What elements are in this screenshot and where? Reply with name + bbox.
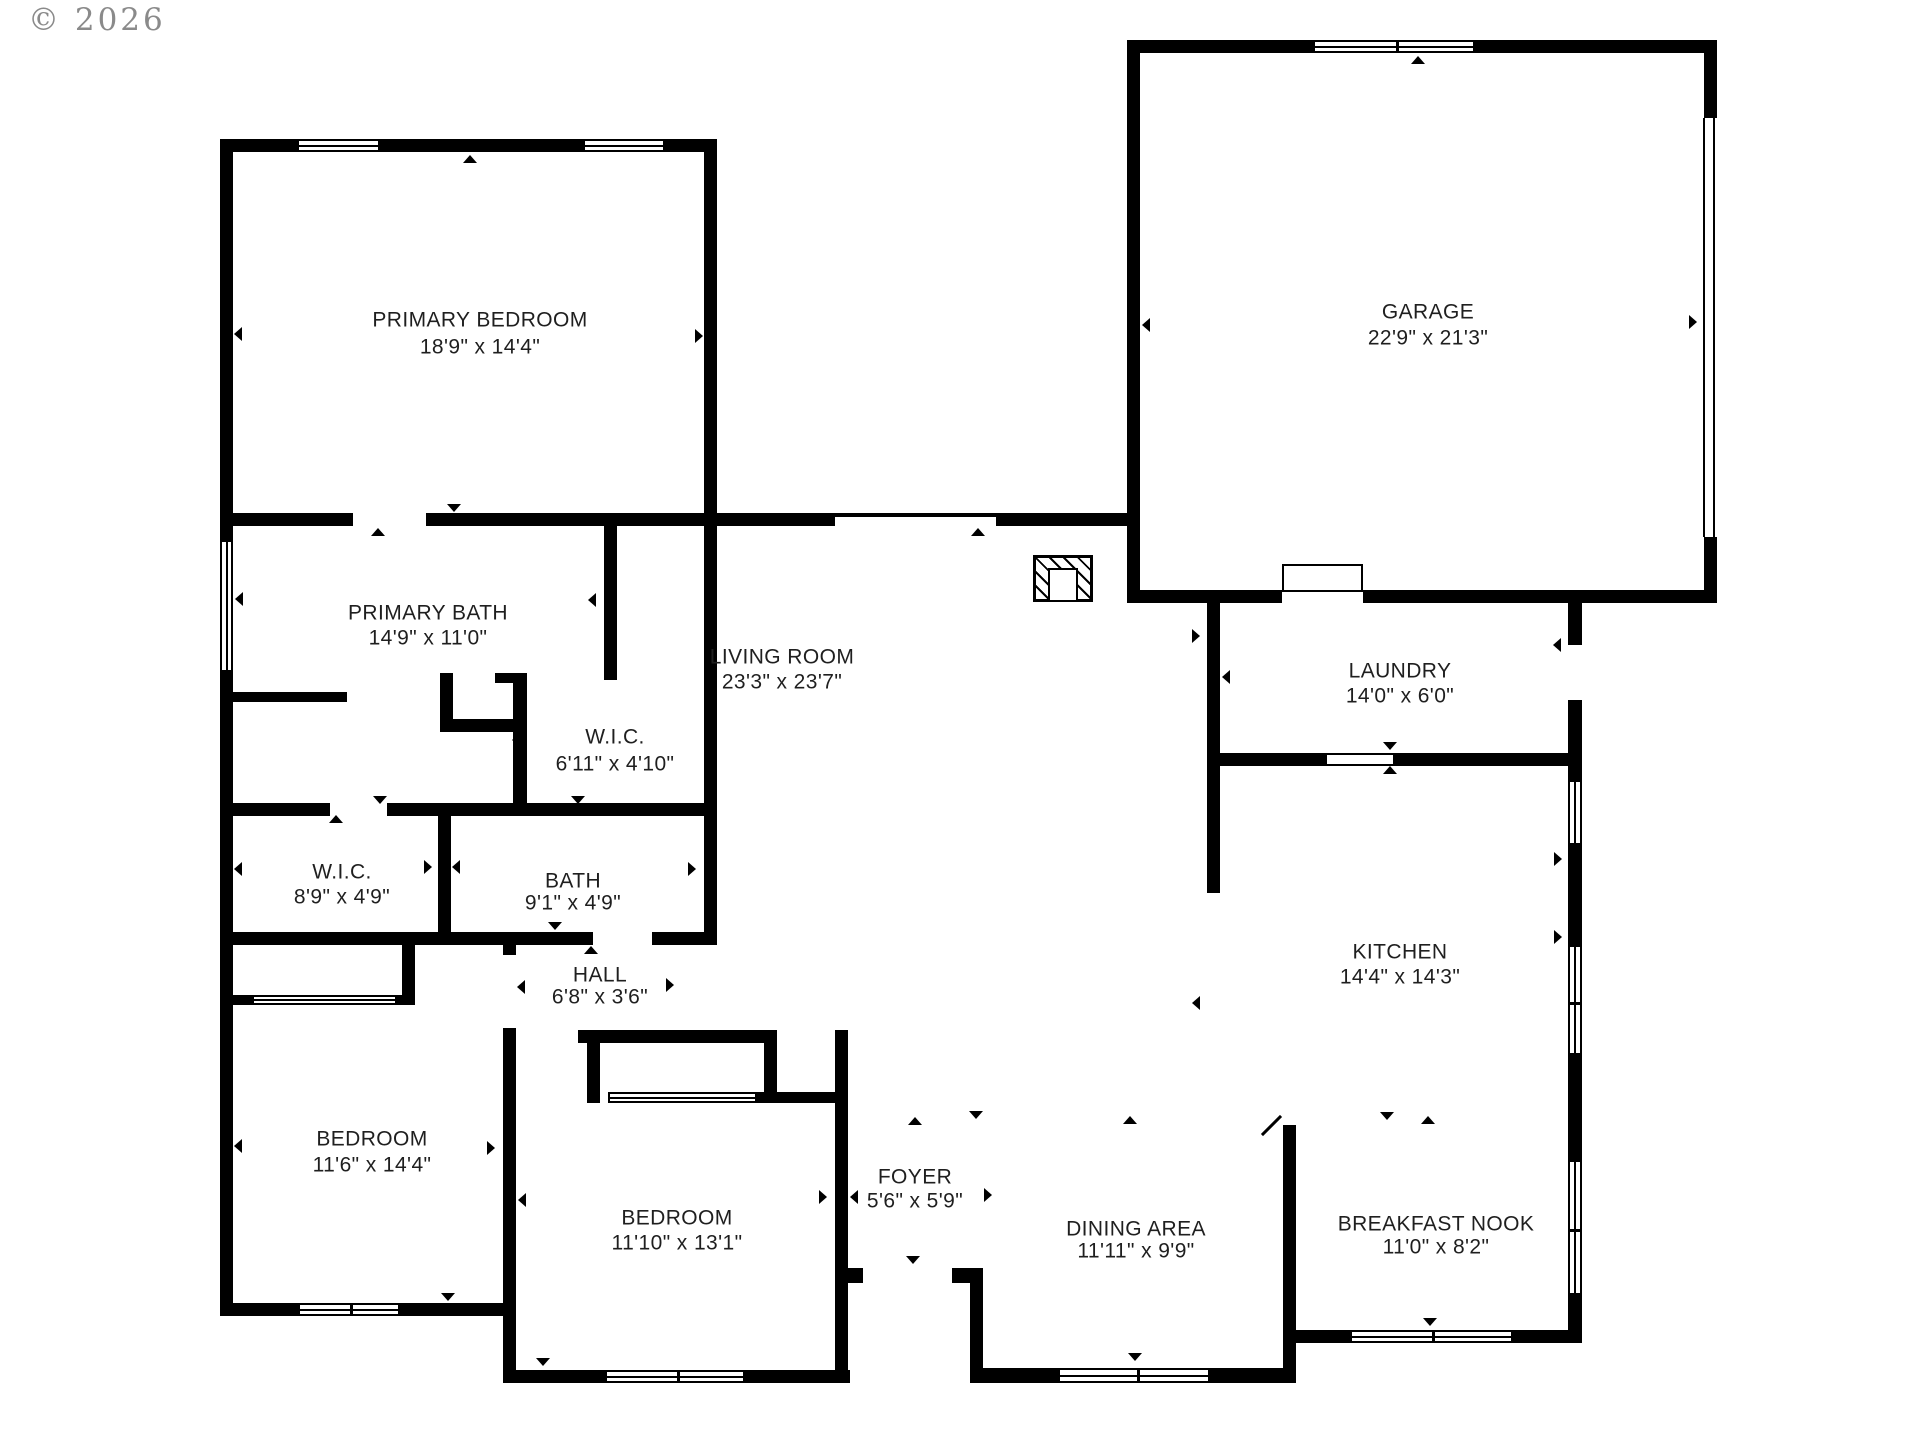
window-pane-line bbox=[607, 1376, 743, 1378]
direction-marker bbox=[695, 329, 703, 343]
wall bbox=[587, 1043, 600, 1103]
direction-marker bbox=[1383, 766, 1397, 774]
direction-marker bbox=[447, 504, 461, 512]
window-mullion bbox=[1569, 1229, 1581, 1232]
direction-marker bbox=[235, 592, 243, 606]
window-pane-line bbox=[1574, 782, 1576, 843]
direction-marker bbox=[441, 1293, 455, 1301]
window bbox=[608, 1092, 757, 1103]
fireplace-firebox bbox=[1048, 568, 1078, 602]
window-pane-line bbox=[1315, 46, 1473, 48]
window-pane-line bbox=[610, 1097, 755, 1099]
room-label: W.I.C. bbox=[585, 727, 645, 748]
window-pane-line bbox=[1574, 1162, 1576, 1293]
copyright-watermark: © 2026 bbox=[28, 2, 166, 38]
window-mullion bbox=[350, 1304, 353, 1315]
direction-marker bbox=[906, 1256, 920, 1264]
window bbox=[298, 1303, 400, 1316]
room-label: BREAKFAST NOOK bbox=[1338, 1214, 1535, 1235]
direction-marker bbox=[1554, 930, 1562, 944]
wall bbox=[835, 1030, 848, 1383]
floor-plan: © 2026 PRIMARY BEDROOM18'9" x 14'4"GARAG… bbox=[0, 0, 1920, 1440]
window-pane-line bbox=[1060, 1375, 1208, 1377]
window-mullion bbox=[1432, 1331, 1435, 1342]
fireplace bbox=[1033, 555, 1093, 602]
room-dimensions: 14'9" x 11'0" bbox=[369, 628, 488, 649]
wall bbox=[220, 803, 717, 816]
direction-marker bbox=[971, 528, 985, 536]
room-label: DINING AREA bbox=[1066, 1219, 1206, 1240]
window-pane-line bbox=[254, 999, 395, 1001]
window bbox=[220, 540, 233, 672]
window-pane-line bbox=[300, 1309, 398, 1311]
window bbox=[1350, 1330, 1513, 1343]
wall bbox=[438, 813, 451, 932]
wall bbox=[604, 526, 617, 680]
direction-marker bbox=[588, 593, 596, 607]
room-dimensions: 23'3" x 23'7" bbox=[722, 672, 842, 693]
direction-marker bbox=[452, 860, 460, 874]
room-label: BEDROOM bbox=[621, 1208, 732, 1229]
room-label: GARAGE bbox=[1382, 302, 1474, 323]
wall bbox=[757, 1092, 837, 1103]
room-dimensions: 14'0" x 6'0" bbox=[1346, 686, 1454, 707]
garage-step bbox=[1282, 564, 1363, 592]
direction-marker bbox=[819, 1190, 827, 1204]
window bbox=[252, 995, 397, 1005]
window-pane-line bbox=[226, 542, 228, 670]
direction-marker bbox=[1222, 670, 1230, 684]
direction-marker bbox=[688, 862, 696, 876]
wall bbox=[1207, 603, 1220, 893]
window bbox=[1703, 118, 1715, 537]
window-pane-line bbox=[299, 145, 378, 147]
direction-marker bbox=[1411, 56, 1425, 64]
window bbox=[583, 139, 665, 152]
room-label: LIVING ROOM bbox=[710, 647, 854, 668]
window-mullion bbox=[1569, 1002, 1581, 1005]
direction-marker bbox=[463, 155, 477, 163]
direction-marker bbox=[371, 528, 385, 536]
wall bbox=[704, 139, 717, 943]
direction-marker bbox=[1123, 1116, 1137, 1124]
direction-marker bbox=[1192, 996, 1200, 1010]
direction-marker bbox=[424, 860, 432, 874]
room-dimensions: 11'6" x 14'4" bbox=[313, 1155, 432, 1176]
direction-marker bbox=[548, 922, 562, 930]
room-dimensions: 6'8" x 3'6" bbox=[552, 987, 648, 1008]
room-label: BEDROOM bbox=[316, 1129, 427, 1150]
direction-marker bbox=[1554, 852, 1562, 866]
room-dimensions: 5'6" x 5'9" bbox=[867, 1191, 963, 1212]
direction-marker bbox=[329, 815, 343, 823]
room-dimensions: 8'9" x 4'9" bbox=[294, 887, 390, 908]
window-pane-line bbox=[585, 145, 663, 147]
window bbox=[605, 1370, 745, 1383]
direction-marker bbox=[536, 1358, 550, 1366]
direction-marker bbox=[1128, 1353, 1142, 1361]
direction-marker bbox=[373, 796, 387, 804]
direction-marker bbox=[512, 733, 520, 747]
room-dimensions: 11'11" x 9'9" bbox=[1077, 1241, 1194, 1262]
window-mullion bbox=[677, 1371, 680, 1382]
room-dimensions: 6'11" x 4'10" bbox=[556, 754, 675, 775]
room-label: BATH bbox=[545, 871, 601, 892]
room-dimensions: 9'1" x 4'9" bbox=[525, 893, 621, 914]
wall bbox=[233, 692, 347, 702]
door-opening bbox=[503, 955, 516, 1028]
direction-marker bbox=[584, 946, 598, 954]
window-mullion bbox=[1396, 41, 1399, 52]
direction-marker bbox=[1421, 1116, 1435, 1124]
direction-marker bbox=[908, 1117, 922, 1125]
direction-marker bbox=[487, 1141, 495, 1155]
door-opening bbox=[1568, 645, 1582, 700]
direction-marker bbox=[666, 978, 674, 992]
window bbox=[1568, 945, 1582, 1055]
direction-marker bbox=[234, 1139, 242, 1153]
room-dimensions: 11'10" x 13'1" bbox=[612, 1233, 743, 1254]
window bbox=[1568, 1160, 1582, 1295]
room-label: PRIMARY BEDROOM bbox=[372, 310, 587, 331]
window bbox=[1058, 1368, 1210, 1383]
door-opening bbox=[863, 1268, 952, 1283]
room-label: LAUNDRY bbox=[1349, 661, 1452, 682]
direction-marker bbox=[984, 1188, 992, 1202]
room-label: FOYER bbox=[878, 1167, 952, 1188]
wall bbox=[970, 1268, 983, 1383]
direction-marker bbox=[571, 796, 585, 804]
wall bbox=[220, 513, 717, 526]
window bbox=[1327, 753, 1393, 766]
door-leaf-line bbox=[1261, 1115, 1282, 1136]
wall bbox=[1127, 590, 1717, 603]
direction-marker bbox=[1380, 1112, 1394, 1120]
direction-marker bbox=[1553, 638, 1561, 652]
direction-marker bbox=[1383, 742, 1397, 750]
direction-marker bbox=[234, 862, 242, 876]
window bbox=[1313, 40, 1475, 53]
door-opening bbox=[593, 932, 652, 945]
room-label: W.I.C. bbox=[312, 862, 372, 883]
direction-marker bbox=[1689, 315, 1697, 329]
window bbox=[297, 139, 380, 152]
door-opening bbox=[353, 513, 426, 526]
room-dimensions: 14'4" x 14'3" bbox=[1340, 967, 1460, 988]
direction-marker bbox=[1192, 629, 1200, 643]
wall bbox=[1704, 40, 1717, 118]
direction-marker bbox=[1142, 318, 1150, 332]
direction-marker bbox=[518, 1193, 526, 1207]
wall bbox=[578, 1030, 777, 1043]
direction-marker bbox=[969, 1111, 983, 1119]
direction-marker bbox=[517, 980, 525, 994]
window-pane-line bbox=[1574, 947, 1576, 1053]
wall bbox=[495, 673, 527, 683]
room-dimensions: 18'9" x 14'4" bbox=[420, 337, 540, 358]
room-label: HALL bbox=[573, 965, 627, 986]
window bbox=[1568, 780, 1582, 845]
wall bbox=[1127, 40, 1140, 603]
wall bbox=[1283, 1125, 1296, 1383]
direction-marker bbox=[234, 327, 242, 341]
room-dimensions: 22'9" x 21'3" bbox=[1368, 328, 1488, 349]
room-label: KITCHEN bbox=[1353, 942, 1448, 963]
room-dimensions: 11'0" x 8'2" bbox=[1383, 1237, 1490, 1258]
window-mullion bbox=[1137, 1369, 1140, 1382]
direction-marker bbox=[1423, 1318, 1437, 1326]
window bbox=[835, 514, 996, 526]
room-label: PRIMARY BATH bbox=[348, 603, 508, 624]
wall bbox=[402, 943, 415, 995]
wall bbox=[220, 139, 233, 1316]
wall bbox=[764, 1043, 777, 1092]
direction-marker bbox=[850, 1190, 858, 1204]
wall bbox=[835, 1268, 863, 1283]
